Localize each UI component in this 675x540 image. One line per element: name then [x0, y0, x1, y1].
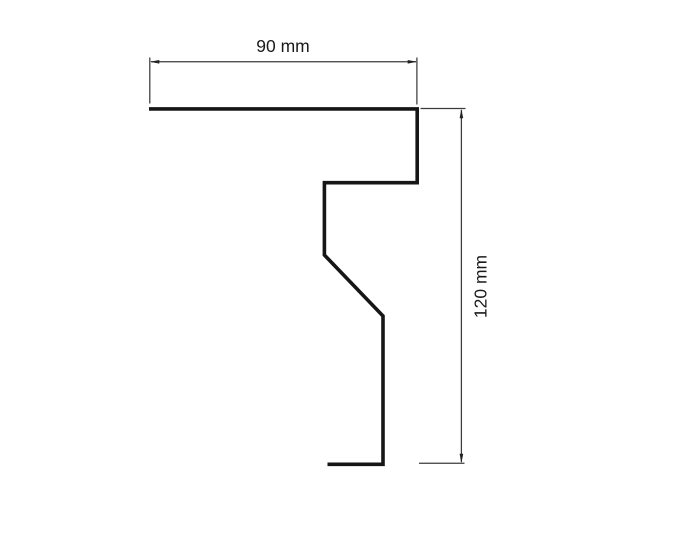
svg-text:90 mm: 90 mm: [256, 36, 309, 56]
svg-text:120 mm: 120 mm: [471, 255, 491, 318]
